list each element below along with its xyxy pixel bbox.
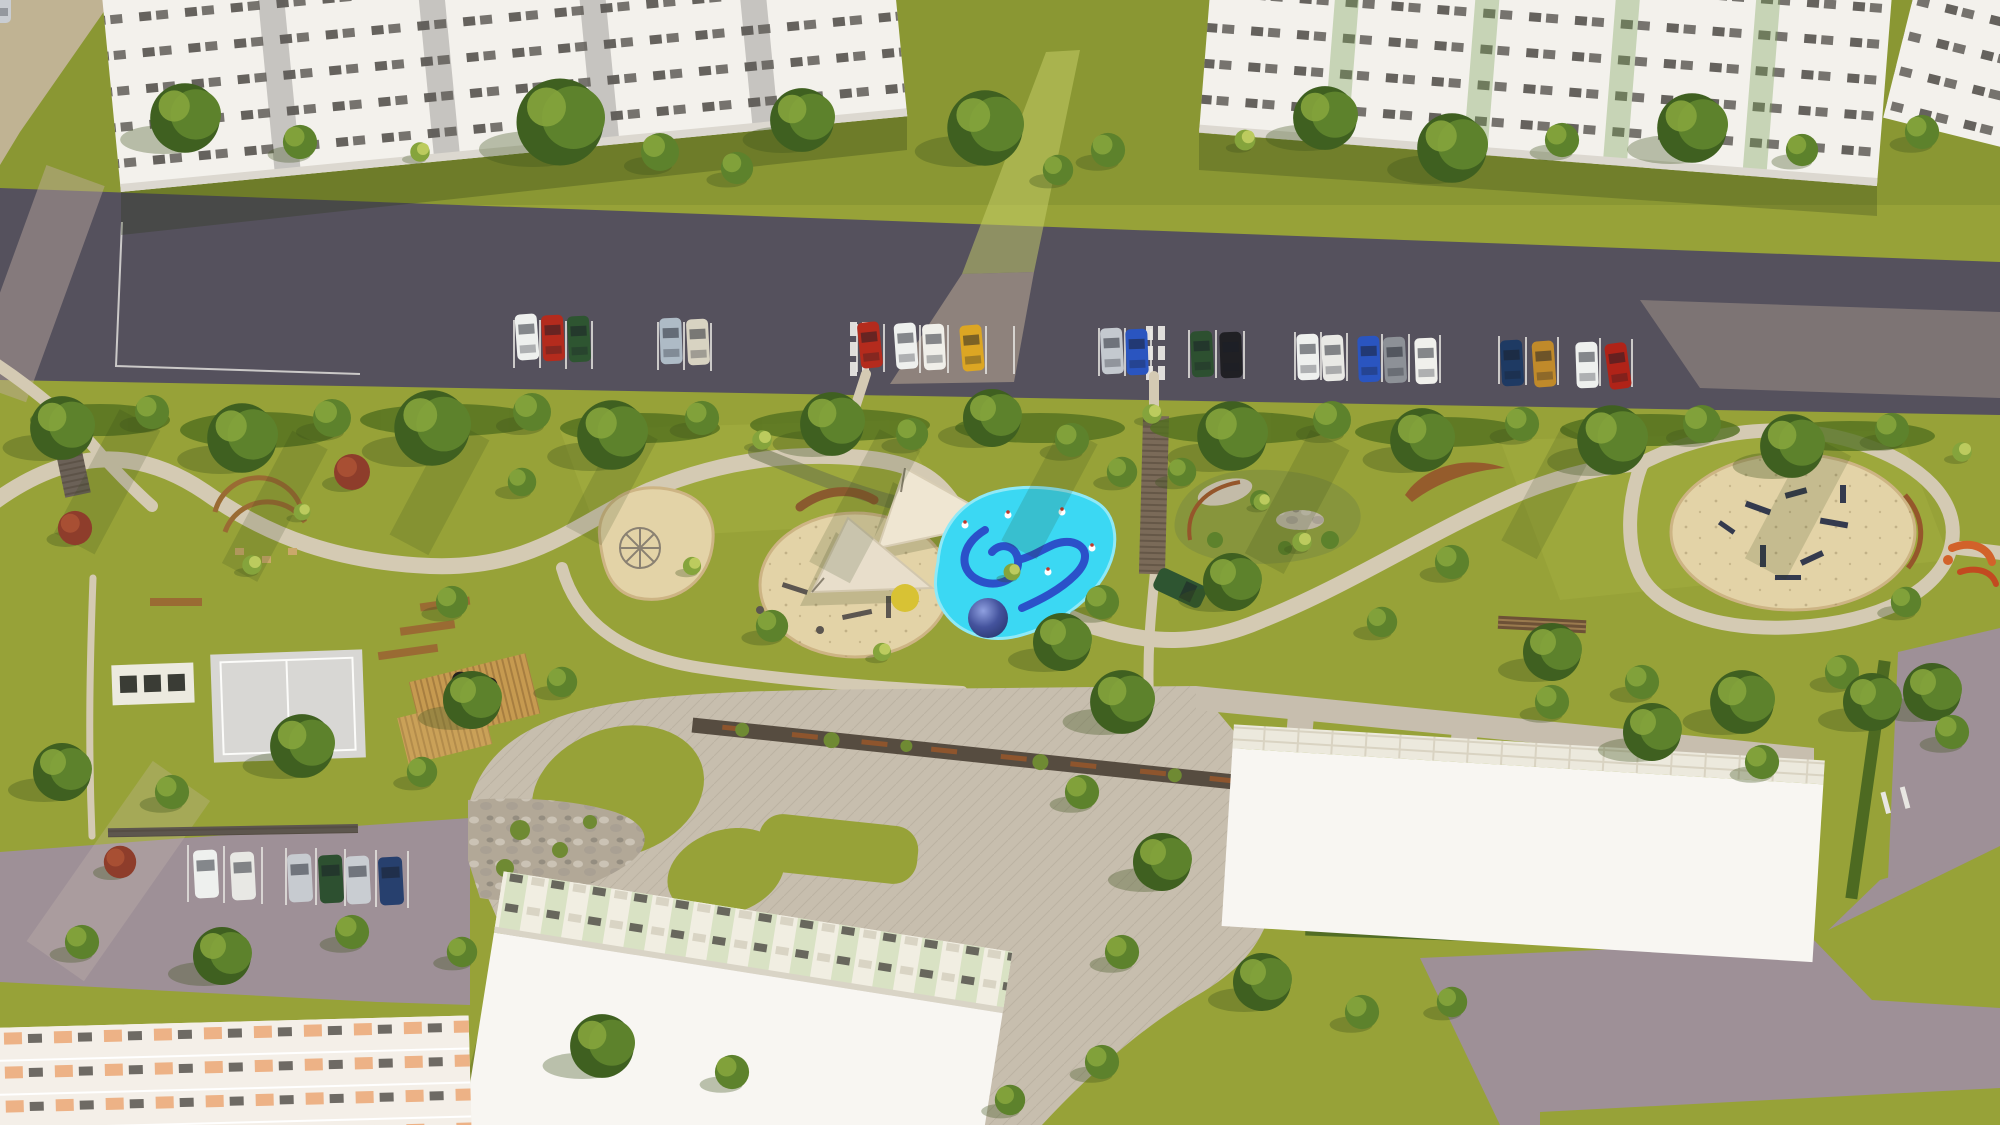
car-roadside-21 <box>1531 340 1556 387</box>
building-south-east <box>1222 724 1825 962</box>
car-roadside-8 <box>922 323 946 370</box>
car-roadside-7 <box>893 322 918 369</box>
car-roadside-11 <box>1100 327 1124 374</box>
car-roadside-5 <box>686 318 710 365</box>
car-lot-1 <box>193 849 219 898</box>
car-lot-4 <box>318 854 344 903</box>
car-lot-5 <box>345 855 371 904</box>
car-roadside-2 <box>541 314 565 361</box>
car-roadside-18 <box>1383 336 1407 383</box>
car-roadside-22 <box>1575 342 1599 389</box>
car-roadside-4 <box>659 318 683 365</box>
car-roadside-14 <box>1219 332 1243 379</box>
car-lot-2 <box>230 851 256 900</box>
climbing-net <box>620 528 660 568</box>
car-lot-3 <box>287 853 313 902</box>
car-roadside-10 <box>0 0 11 23</box>
path-west-lane <box>90 578 93 836</box>
car-roadside-15 <box>1296 334 1320 381</box>
play-dome <box>968 598 1008 638</box>
car-roadside-12 <box>1125 329 1149 376</box>
car-roadside-3 <box>567 315 591 362</box>
car-roadside-1 <box>514 313 539 360</box>
aerial-render <box>0 0 2000 1125</box>
yellow-shrub <box>891 584 919 612</box>
car-roadside-20 <box>1500 339 1524 386</box>
building-south-west <box>0 1015 472 1125</box>
car-roadside-17 <box>1357 336 1381 383</box>
car-roadside-19 <box>1414 338 1438 385</box>
car-lot-6 <box>378 856 404 905</box>
boardwalk <box>1139 416 1169 575</box>
car-roadside-9 <box>959 324 985 372</box>
car-roadside-16 <box>1321 334 1345 381</box>
game-tables <box>111 662 194 705</box>
car-roadside-13 <box>1190 330 1214 377</box>
